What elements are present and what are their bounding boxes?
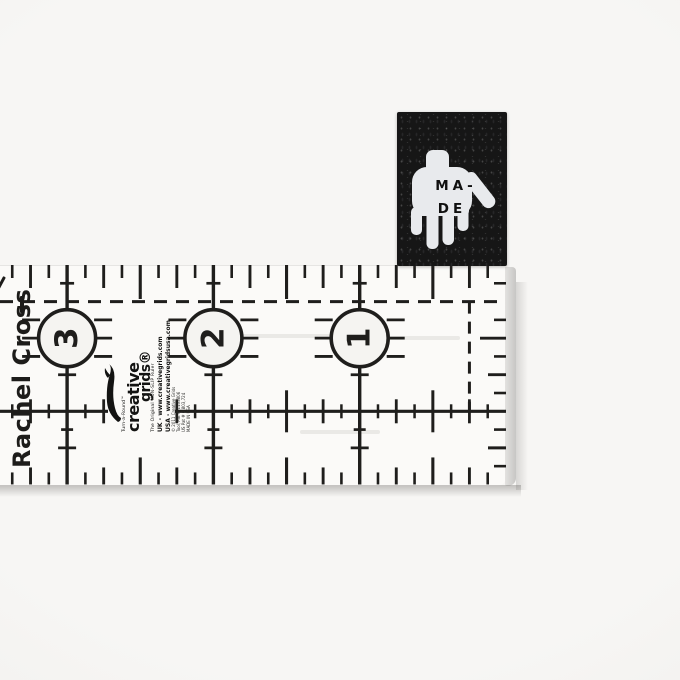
brand-made-in: MADE IN USA (187, 322, 192, 432)
product-photo-stage: 123 Rachel Cross Turn-a-Round™ creative … (0, 0, 680, 680)
fabric-tag: MA- DE (397, 112, 507, 266)
scale-number: 2 (195, 327, 231, 349)
brand-swoosh-icon (102, 322, 122, 424)
print-fragment (20, 296, 24, 313)
scale-number: 3 (49, 327, 85, 349)
brand-url-uk: UK - www.creativegrids.com (157, 322, 165, 432)
tag-text-line1: MA- (397, 178, 511, 194)
scale-number: 1 (342, 327, 378, 349)
tag-text-line2: DE (397, 201, 507, 217)
creative-grids-brand-block: Turn-a-Round™ creative grids® The Origin… (100, 322, 180, 432)
